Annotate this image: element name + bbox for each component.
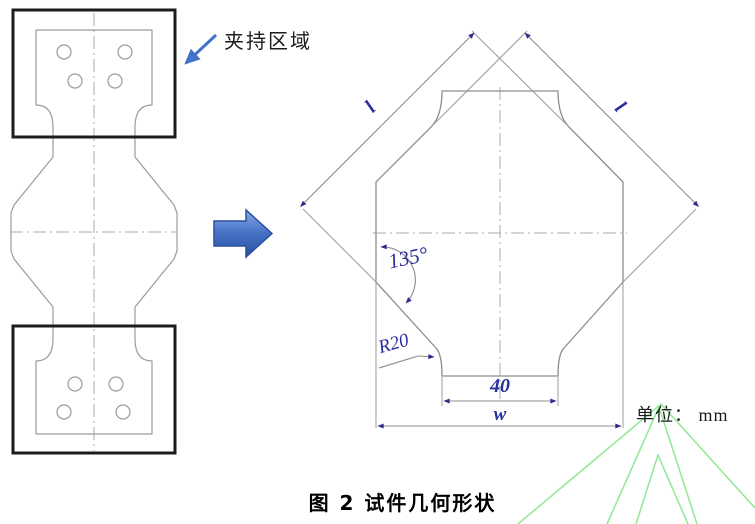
bolt-hole [116, 405, 130, 419]
bolt-hole [68, 74, 82, 88]
bolt-hole [68, 377, 82, 391]
dim-line-l-right [525, 33, 699, 207]
clamp-pointer-arrow-icon [186, 35, 216, 63]
left-specimen-view [10, 10, 177, 453]
bolt-hole [118, 45, 132, 59]
radius-leader-arrow [418, 356, 434, 357]
bolt-hole [108, 74, 122, 88]
bolt-hole [57, 405, 71, 419]
ext-upper-left-edge [431, 31, 527, 127]
specimen-geometry-drawing [0, 0, 755, 524]
figure-canvas: 夹持区域 135° R20 40 w l l 单位： mm 图 2 试件几何形状 [0, 0, 755, 524]
transform-arrow-icon [214, 210, 272, 257]
ext-upper-right-edge [472, 31, 569, 127]
unit-label: 单位： mm [636, 401, 729, 427]
ext-lower-right-edge [623, 209, 696, 282]
ext-lower-left-edge [303, 209, 376, 282]
clamp-region-label: 夹持区域 [224, 25, 312, 54]
bolt-hole [57, 45, 71, 59]
overall-width-label: w [486, 404, 514, 426]
dim-line-l-left [301, 33, 475, 207]
watermark-peak-small [636, 455, 688, 524]
gauge-width-label: 40 [484, 375, 516, 398]
bolt-hole [109, 377, 123, 391]
figure-caption: 图 2 试件几何形状 [230, 487, 575, 516]
right-specimen-view [301, 31, 699, 428]
